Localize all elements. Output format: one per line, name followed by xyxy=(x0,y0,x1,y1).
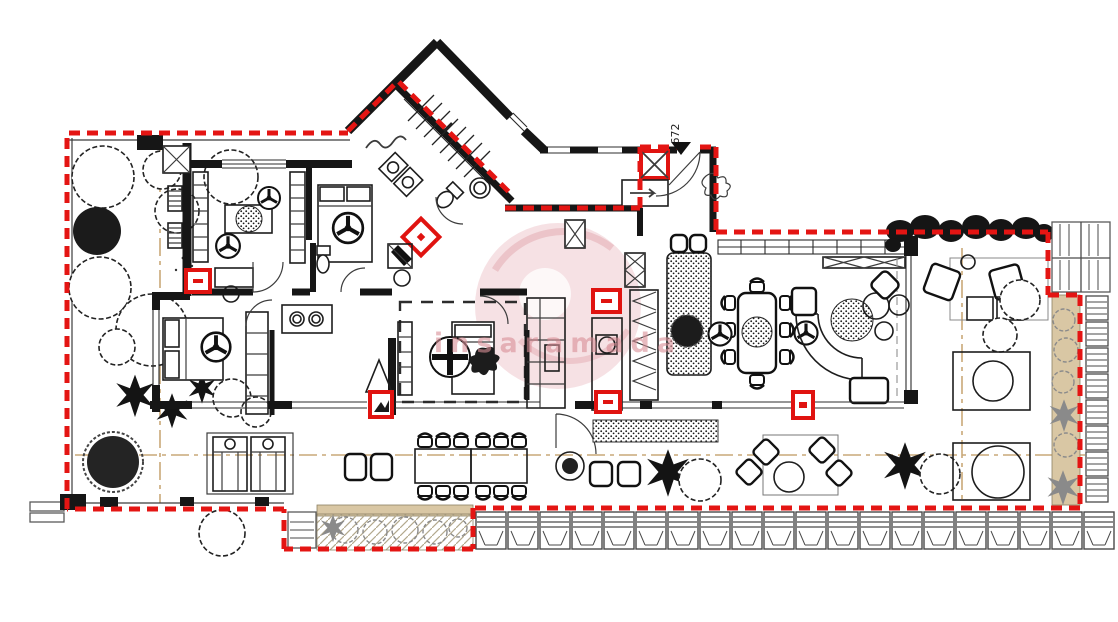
section-break-line xyxy=(366,136,406,148)
fire-damper-diamond-marker xyxy=(403,219,440,256)
lounger-deck xyxy=(207,433,293,494)
armchair xyxy=(371,454,392,480)
basin xyxy=(394,270,410,286)
dining-chair xyxy=(722,296,736,310)
floor-plan-page: 672 insaramada xyxy=(0,0,1118,622)
wall-stub xyxy=(391,245,412,266)
watermark-text: insaramada xyxy=(434,328,682,359)
terrace-south xyxy=(207,420,960,501)
swivel-chair xyxy=(258,187,280,209)
convector-marker xyxy=(793,392,813,418)
palm-plant xyxy=(116,375,153,418)
floor-plan-canvas: 672 insaramada xyxy=(0,0,1118,622)
pergola-grid-ne xyxy=(1052,222,1110,292)
coffee-table xyxy=(774,462,804,492)
spa-table xyxy=(953,352,1030,410)
planting-bed xyxy=(593,420,718,442)
sun-lounger xyxy=(213,437,247,491)
living-dining xyxy=(667,235,918,404)
bar-stool xyxy=(671,235,687,252)
pouf xyxy=(831,299,873,341)
kitchenette xyxy=(282,305,332,333)
east-rail-band xyxy=(1086,296,1108,502)
swivel-chair xyxy=(216,234,240,258)
dark-shrub xyxy=(73,207,121,255)
outdoor-long-table xyxy=(415,434,527,500)
entry-zone xyxy=(540,147,730,248)
toilet xyxy=(317,255,329,273)
round-plant xyxy=(236,206,262,232)
sideboard xyxy=(823,257,905,268)
door-number-label: 672 xyxy=(669,124,682,145)
armchair xyxy=(618,462,640,486)
bar-stool xyxy=(690,235,706,252)
convector-marker xyxy=(596,392,620,412)
armchair xyxy=(345,454,366,480)
west-stub xyxy=(30,502,64,522)
lounge-group xyxy=(735,435,853,495)
sun-lounger xyxy=(251,437,285,491)
dense-tree xyxy=(87,436,139,488)
bottom-louvre-band xyxy=(476,512,1114,549)
armchair xyxy=(590,462,612,486)
convector-marker xyxy=(186,270,210,292)
planter-east xyxy=(1048,295,1080,505)
console-desk xyxy=(215,268,253,287)
convector-marker xyxy=(593,290,620,312)
fireplace-marker xyxy=(370,392,392,417)
watermark-text-layer: insaramada xyxy=(434,328,682,359)
planter-south xyxy=(288,505,473,550)
stair-bathroom xyxy=(434,178,490,224)
side-table xyxy=(708,322,731,345)
fence-pier xyxy=(137,135,163,150)
spa-table xyxy=(953,443,1030,500)
garden-chair xyxy=(923,263,961,301)
laundry-machines xyxy=(379,153,423,197)
